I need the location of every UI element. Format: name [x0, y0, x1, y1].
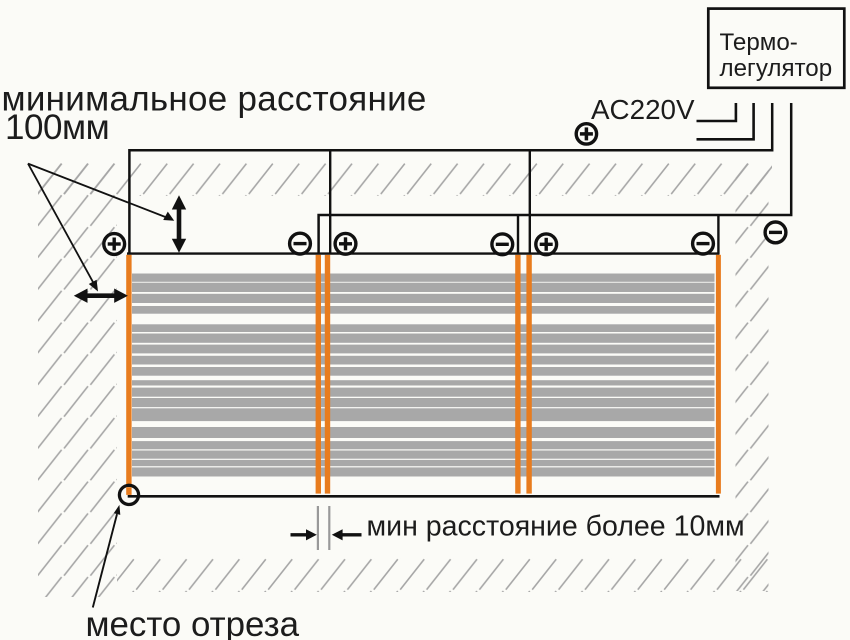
- svg-text:мин расстояние более 10мм: мин расстояние более 10мм: [367, 511, 745, 543]
- svg-text:100мм: 100мм: [5, 108, 109, 147]
- svg-text:легулятор: легулятор: [720, 55, 833, 82]
- svg-text:AC220V: AC220V: [591, 94, 695, 125]
- svg-text:Термо-: Термо-: [720, 29, 798, 56]
- svg-text:место отреза: место отреза: [86, 605, 300, 640]
